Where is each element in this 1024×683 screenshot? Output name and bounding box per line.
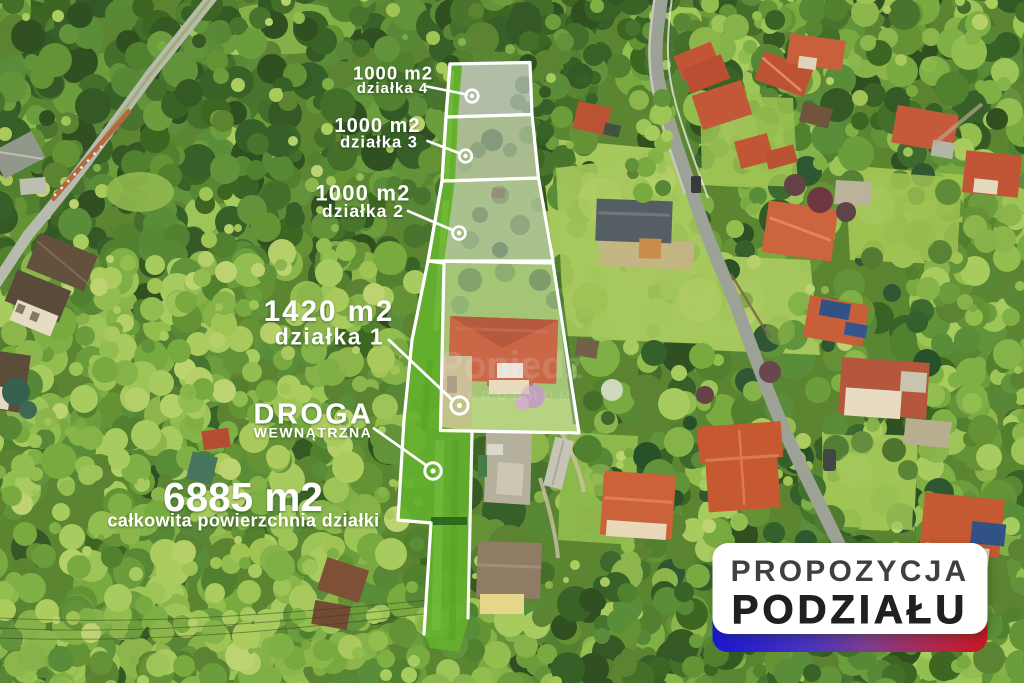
svg-text:NIERUCHOM: NIERUCHOM xyxy=(442,388,576,403)
svg-text:działka 2: działka 2 xyxy=(322,201,404,221)
svg-text:Poniedz: Poniedz xyxy=(438,345,584,387)
svg-text:działka 3: działka 3 xyxy=(340,134,418,152)
svg-text:PODZIAŁU: PODZIAŁU xyxy=(732,588,968,632)
svg-text:WEWNĄTRZNA: WEWNĄTRZNA xyxy=(254,425,372,441)
svg-text:działka 1: działka 1 xyxy=(275,324,384,350)
svg-text:PROPOZYCJA: PROPOZYCJA xyxy=(731,555,970,588)
svg-text:całkowita powierzchnia działki: całkowita powierzchnia działki xyxy=(107,511,379,531)
svg-text:działka 4: działka 4 xyxy=(357,80,429,97)
